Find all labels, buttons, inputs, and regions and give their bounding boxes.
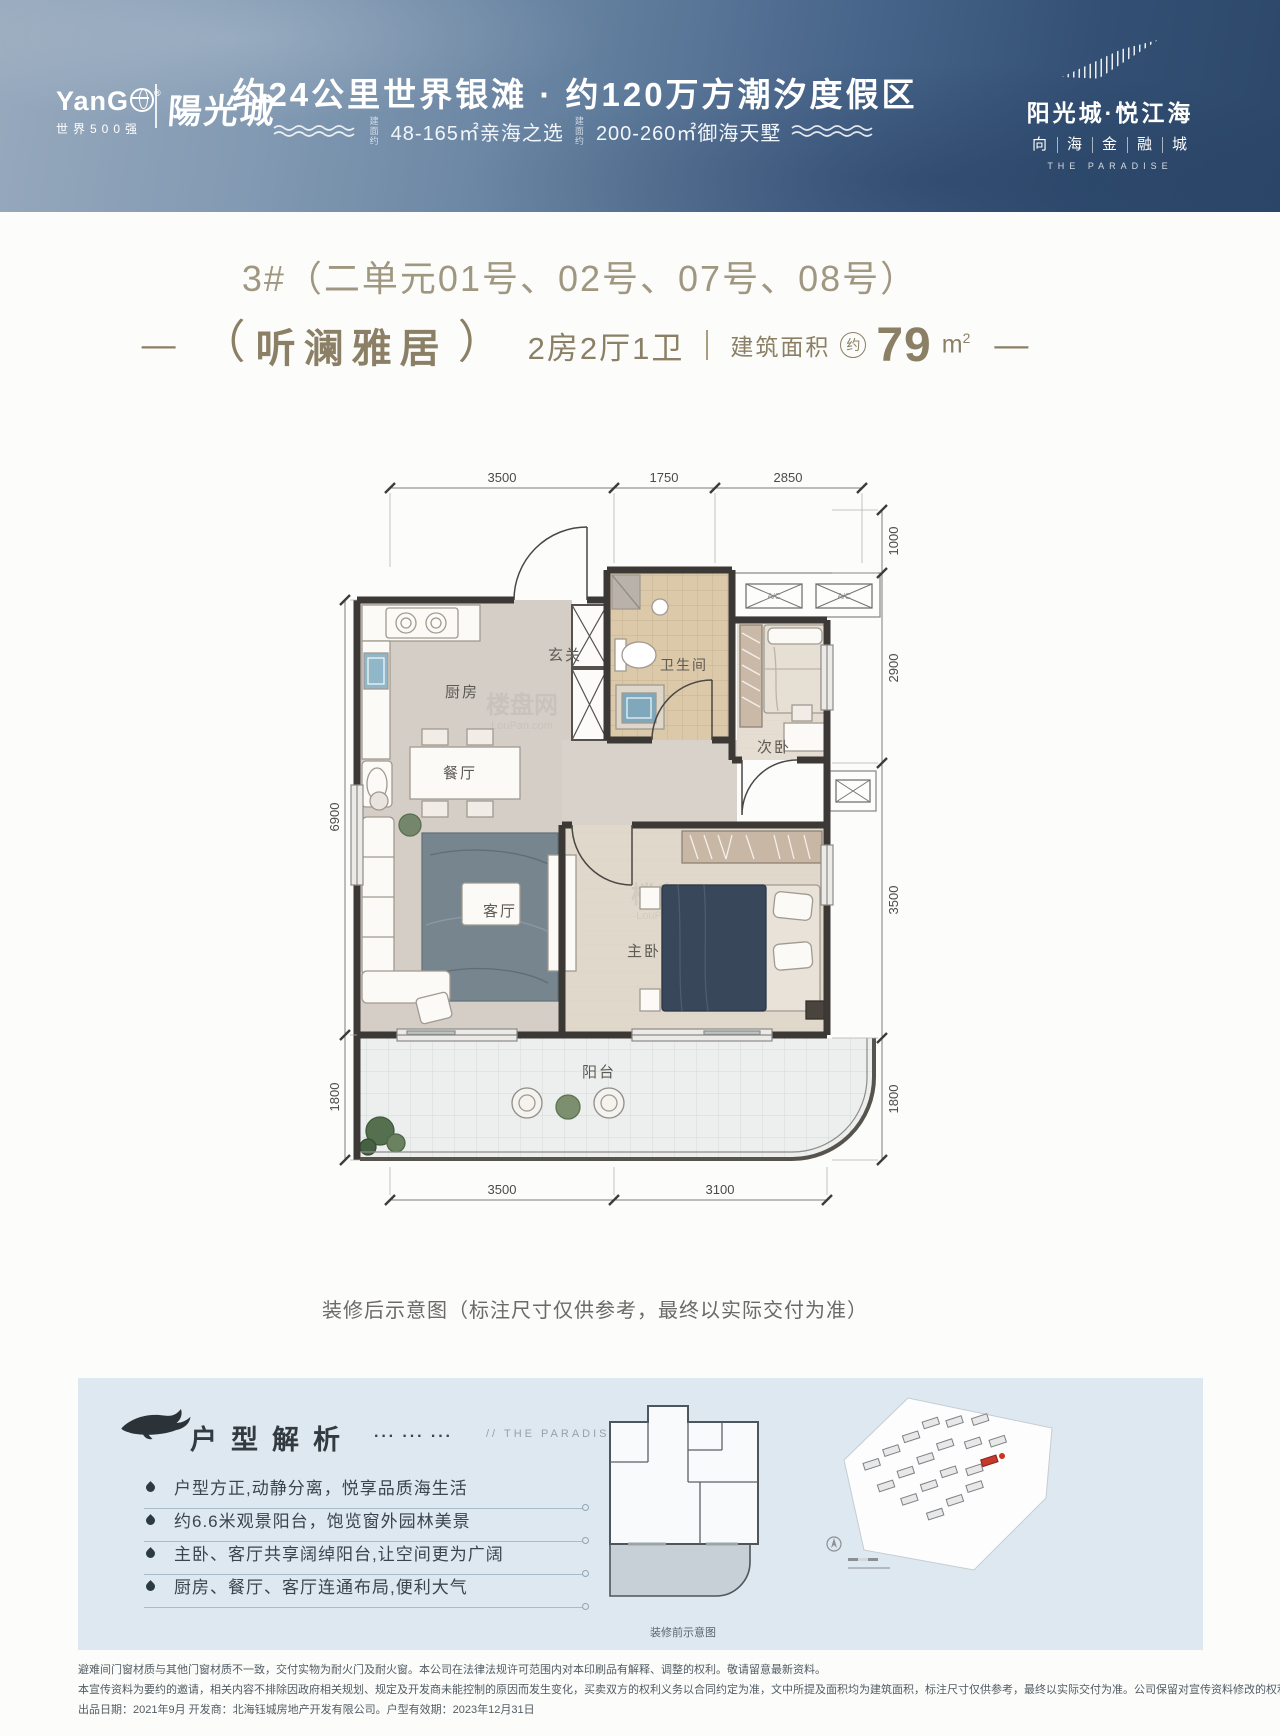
- svg-text:2900: 2900: [886, 654, 901, 683]
- droplet-icon: [144, 1481, 157, 1494]
- svg-text:LouPan.com: LouPan.com: [491, 720, 553, 732]
- unit-name: 听澜雅居: [256, 316, 448, 374]
- slogan-char: 金: [1093, 137, 1128, 153]
- unit-title-line: — （ 听澜雅居 ） 2房2厅1卫 建筑面积 约 79 m2 —: [0, 316, 1170, 374]
- bullet-row: 约6.6米观景阳台，饱览窗外园林美景: [144, 1509, 586, 1542]
- wave-right-icon: [791, 123, 877, 139]
- brand-wordmark: YanG®: [56, 80, 162, 115]
- slogan-char: 海: [1058, 137, 1093, 153]
- svg-text:A/C: A/C: [837, 592, 851, 601]
- header-band: YanG® 世界500强 陽光城 约24公里世界银滩 · 约120万方潮汐度假区…: [0, 0, 1280, 212]
- paren-open: （: [200, 319, 246, 365]
- area-unit: m2: [942, 330, 971, 359]
- project-block: 阳光城·悦江海 向 海 金 融 城 THE PARADISE: [1000, 40, 1220, 171]
- bullet-row: 厨房、餐厅、客厅连通布局,便利大气: [144, 1575, 586, 1608]
- droplet-icon: [144, 1547, 157, 1560]
- offer-prefix: 建面约: [574, 116, 586, 146]
- dash-right: —: [994, 326, 1028, 365]
- bullet-row: 户型方正,动静分离，悦享品质海生活: [144, 1476, 586, 1509]
- brand-name-text: YanG: [56, 86, 129, 116]
- offer-prefix: 建面约: [369, 116, 381, 146]
- area-approx-circle: 约: [840, 332, 866, 358]
- offer-text: 48-165㎡亲海之选: [391, 117, 564, 146]
- droplet-icon: [144, 1514, 157, 1527]
- globe-icon: [130, 88, 154, 112]
- brand-logo: YanG® 世界500强: [56, 80, 162, 137]
- floorplan-drawing: 楼盘网 LouPan.com 楼盘网 LouPan.com: [322, 455, 902, 1215]
- sail-hatch-icon: [1062, 40, 1158, 82]
- svg-text:楼盘网: 楼盘网: [486, 691, 558, 719]
- svg-text:阳台: 阳台: [582, 1064, 616, 1081]
- before-plan-drawing: [588, 1390, 778, 1622]
- highlight-dot: [999, 1453, 1005, 1459]
- project-slogan: 向 海 金 融 城: [1000, 137, 1220, 153]
- offer-text: 200-260㎡御海天墅: [596, 117, 781, 146]
- dash-left: —: [142, 326, 176, 365]
- bullet-list: 户型方正,动静分离，悦享品质海生活 约6.6米观景阳台，饱览窗外园林美景 主卧、…: [144, 1476, 586, 1608]
- svg-text:3500: 3500: [488, 1182, 517, 1197]
- whale-icon: [118, 1404, 196, 1444]
- legal-line: 本宣传资料为要约的邀请，相关内容不排除因政府相关规划、规定及开发商未能控制的原因…: [78, 1680, 1208, 1700]
- bullet-row: 主卧、客厅共享阔绰阳台,让空间更为广阔: [144, 1542, 586, 1575]
- svg-text:客厅: 客厅: [483, 903, 517, 920]
- svg-text:1800: 1800: [327, 1083, 342, 1112]
- svg-text:3500: 3500: [886, 886, 901, 915]
- divider-bar: [706, 330, 708, 360]
- svg-text:玄关: 玄关: [548, 647, 582, 664]
- slogan-char: 向: [1023, 137, 1058, 153]
- brand-tagline: 世界500强: [56, 120, 162, 137]
- svg-text:1000: 1000: [886, 527, 901, 556]
- svg-text:A/C: A/C: [767, 592, 781, 601]
- header-subline: 建面约 48-165㎡亲海之选 建面约 200-260㎡御海天墅: [160, 116, 990, 146]
- analysis-panel: 户型解析 ··· ··· ··· // THE PARADISE / 户型方正,…: [78, 1378, 1203, 1650]
- building-title: 3#（二单元01号、02号、07号、08号）: [0, 250, 1160, 302]
- svg-text:6900: 6900: [327, 803, 342, 832]
- wave-left-icon: [273, 123, 359, 139]
- project-en: THE PARADISE: [1000, 161, 1220, 171]
- area-unit-sup: 2: [963, 330, 971, 346]
- svg-text:次卧: 次卧: [757, 739, 791, 756]
- svg-text:3500: 3500: [488, 470, 517, 485]
- svg-text:2850: 2850: [774, 470, 803, 485]
- flyer-page: YanG® 世界500强 陽光城 约24公里世界银滩 · 约120万方潮汐度假区…: [0, 0, 1280, 1736]
- project-name: 阳光城·悦江海: [1000, 94, 1220, 128]
- area-label: 建筑面积: [730, 328, 830, 362]
- legal-block: 避难间门窗材质与其他门窗材质不一致，交付实物为耐火门及耐火窗。本公司在法律法规许…: [78, 1660, 1208, 1720]
- legal-line: 出品日期：2021年9月 开发商：北海钰城房地产开发有限公司。户型有效期：202…: [78, 1700, 1208, 1720]
- bullet-text: 约6.6米观景阳台，饱览窗外园林美景: [174, 1512, 471, 1531]
- analysis-title: 户型解析: [190, 1418, 354, 1457]
- brand-divider: [155, 84, 157, 128]
- unit-layout: 2房2厅1卫: [528, 323, 685, 368]
- bullet-text: 厨房、餐厅、客厅连通布局,便利大气: [174, 1578, 468, 1597]
- siteplan-map: [816, 1382, 1066, 1582]
- paren-close: ）: [458, 319, 504, 365]
- droplet-icon: [144, 1580, 157, 1593]
- svg-text:3100: 3100: [706, 1182, 735, 1197]
- svg-text:厨房: 厨房: [445, 684, 479, 701]
- svg-text:餐厅: 餐厅: [443, 765, 477, 782]
- svg-text:1800: 1800: [886, 1085, 901, 1114]
- before-plan-caption: 装修前示意图: [588, 1624, 778, 1640]
- svg-text:1750: 1750: [650, 470, 679, 485]
- bullet-text: 户型方正,动静分离，悦享品质海生活: [174, 1479, 468, 1498]
- slogan-char: 城: [1163, 137, 1197, 153]
- plan-caption: 装修后示意图（标注尺寸仅供参考，最终以实际交付为准）: [0, 1294, 1190, 1323]
- bullet-text: 主卧、客厅共享阔绰阳台,让空间更为广阔: [174, 1545, 504, 1564]
- svg-text:卫生间: 卫生间: [660, 657, 708, 673]
- area-unit-m: m: [942, 331, 963, 359]
- header-headline: 约24公里世界银滩 · 约120万方潮汐度假区: [160, 68, 990, 116]
- area-value: 79: [876, 318, 931, 373]
- svg-text:主卧: 主卧: [627, 943, 661, 960]
- analysis-dots: ··· ··· ···: [374, 1428, 453, 1446]
- legal-line: 避难间门窗材质与其他门窗材质不一致，交付实物为耐火门及耐火窗。本公司在法律法规许…: [78, 1660, 1208, 1680]
- slogan-char: 融: [1128, 137, 1163, 153]
